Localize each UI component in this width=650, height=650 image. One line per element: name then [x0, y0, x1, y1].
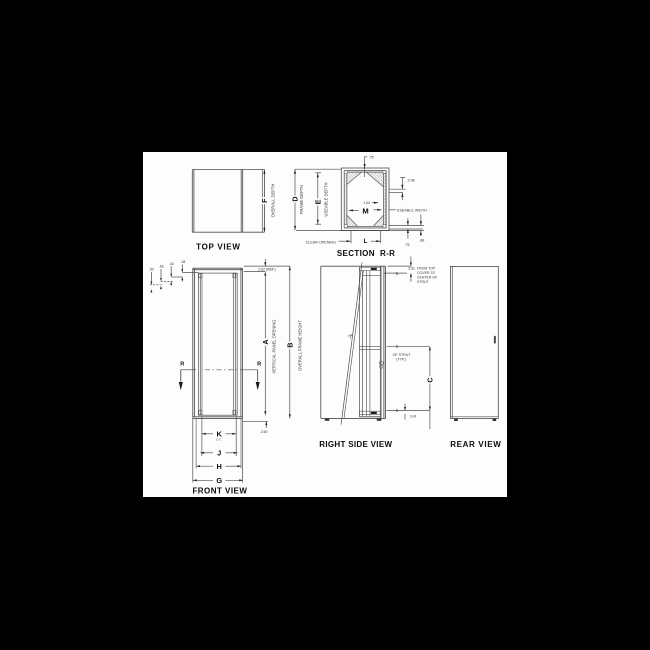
svg-text:REAR VIEW: REAR VIEW — [450, 440, 501, 449]
svg-text:.75: .75 — [405, 243, 410, 247]
svg-text:.88: .88 — [419, 239, 424, 243]
svg-text:G: G — [216, 476, 222, 485]
svg-text:℄: ℄ — [395, 271, 399, 276]
svg-text:.43: .43 — [169, 262, 174, 266]
svg-text:F: F — [260, 198, 269, 203]
svg-text:STRUT: STRUT — [417, 280, 430, 284]
svg-text:USEABLE WIDTH: USEABLE WIDTH — [397, 208, 427, 212]
svg-text:RIGHT SIDE VIEW: RIGHT SIDE VIEW — [319, 440, 392, 449]
svg-text:USEABLE DEPTH: USEABLE DEPTH — [323, 183, 328, 217]
svg-text:CLEAR OPENING: CLEAR OPENING — [306, 241, 336, 245]
svg-text:TOP VIEW: TOP VIEW — [196, 243, 240, 252]
svg-text:.28: .28 — [181, 260, 186, 264]
svg-text:CENTER OF: CENTER OF — [417, 276, 437, 280]
svg-text:(TYP.): (TYP.) — [396, 357, 406, 361]
svg-text:OF STRUT: OF STRUT — [393, 353, 412, 357]
svg-text:FRAME DEPTH: FRAME DEPTH — [299, 185, 304, 214]
svg-text:J: J — [217, 448, 221, 457]
svg-text:B: B — [285, 343, 294, 348]
svg-text:E: E — [313, 199, 322, 204]
svg-text:.50: .50 — [149, 267, 154, 271]
svg-text:3.41: 3.41 — [410, 415, 417, 419]
svg-text:3.51: 3.51 — [408, 267, 415, 271]
svg-text:R: R — [257, 361, 261, 367]
svg-text:COVER TO: COVER TO — [417, 271, 435, 275]
svg-text:C-C: C-C — [216, 438, 222, 442]
svg-text:R: R — [180, 361, 184, 367]
svg-text:C: C — [426, 377, 435, 382]
svg-text:.75: .75 — [369, 156, 374, 160]
svg-text:OVERALL DEPTH: OVERALL DEPTH — [270, 184, 275, 218]
svg-text:H: H — [217, 462, 222, 471]
svg-text:A: A — [261, 339, 270, 344]
svg-text:2.50: 2.50 — [261, 430, 268, 434]
svg-text:.63: .63 — [159, 265, 164, 269]
svg-text:SECTION R-R: SECTION R-R — [337, 249, 395, 258]
svg-text:℄: ℄ — [395, 344, 399, 349]
svg-text:2.08: 2.08 — [408, 178, 415, 182]
svg-text:FROM TOP: FROM TOP — [417, 267, 436, 271]
svg-text:L: L — [364, 238, 368, 245]
svg-text:M: M — [362, 206, 368, 215]
svg-text:FRONT VIEW: FRONT VIEW — [192, 487, 247, 496]
svg-text:1.03: 1.03 — [363, 201, 370, 205]
svg-text:2.62 (REF.): 2.62 (REF.) — [258, 268, 276, 272]
svg-text:OVERALL FRAME HEIGHT: OVERALL FRAME HEIGHT — [298, 320, 303, 371]
svg-text:VERTICAL PANEL OPENING: VERTICAL PANEL OPENING — [271, 320, 276, 374]
